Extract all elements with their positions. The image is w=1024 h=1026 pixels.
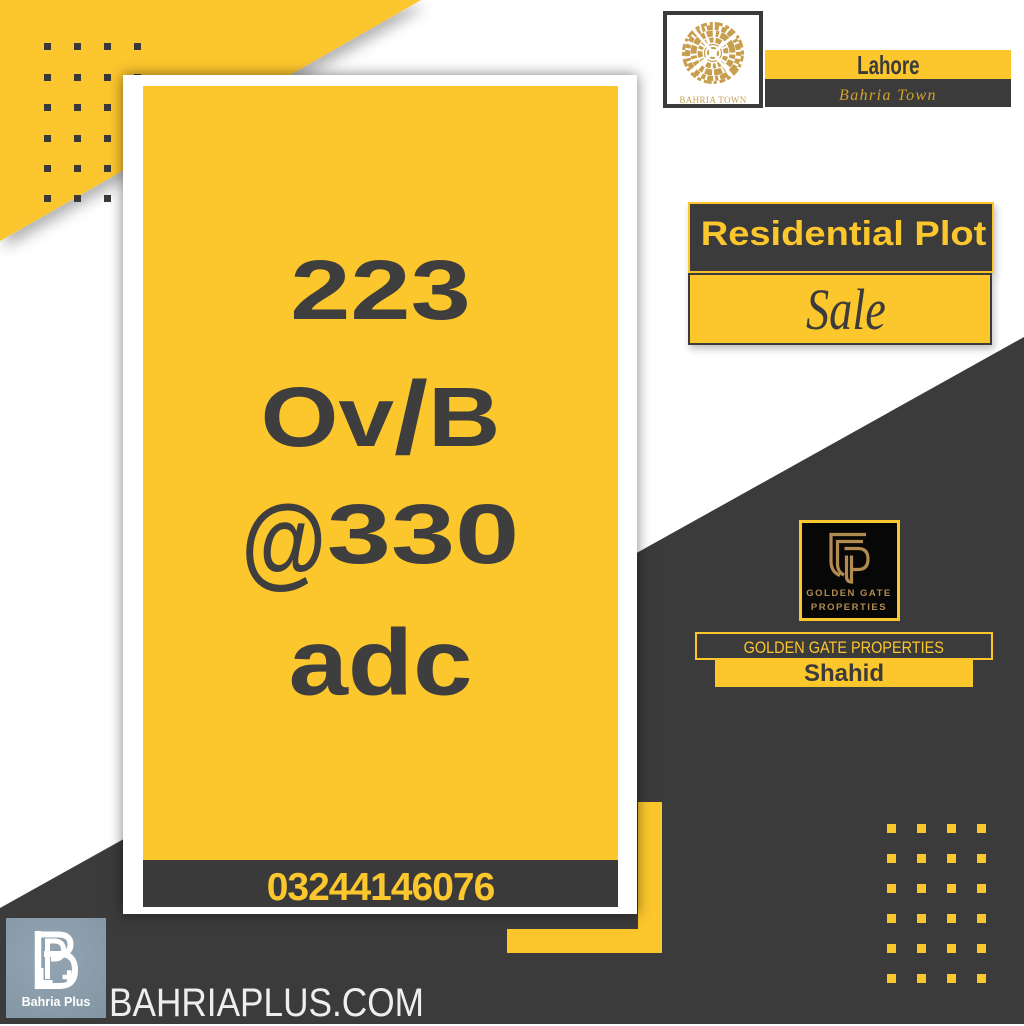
svg-text:GOLDEN GATE: GOLDEN GATE [806, 588, 891, 599]
svg-text:BAHRIA TOWN: BAHRIA TOWN [679, 95, 746, 105]
svg-text:Bahria Plus: Bahria Plus [22, 995, 91, 1009]
svg-text:PROPERTIES: PROPERTIES [811, 602, 887, 613]
